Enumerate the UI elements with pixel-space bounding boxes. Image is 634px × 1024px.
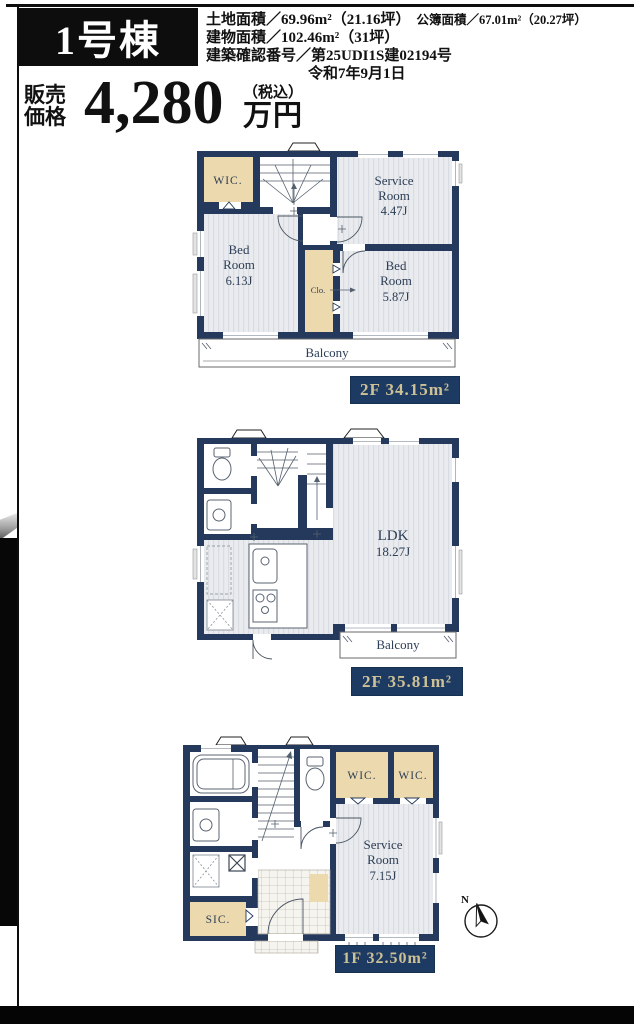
top-frame-rule — [6, 4, 634, 7]
confirmation-number: 建築確認番号／第25UDI1S建02194号 — [206, 47, 626, 65]
service-room-line2: Room — [367, 852, 399, 867]
shoe-cabinet — [310, 874, 328, 902]
stair-opening — [326, 508, 333, 528]
floor-label-upper: 2F 34.15m² — [350, 376, 460, 404]
toilet-icon — [306, 757, 324, 790]
price-label: 販売 価格 — [24, 84, 76, 128]
floorplan-middle: Balcony LDK 18.27J — [193, 428, 465, 668]
bathtub-icon — [193, 755, 249, 793]
balcony: Balcony — [199, 339, 455, 367]
roof-vent-mark — [344, 429, 384, 438]
floor-label-middle: 2F 35.81m² — [351, 667, 463, 696]
washbasin-icon — [207, 500, 231, 530]
price-unit-block: （税込） 万円 — [243, 86, 303, 131]
door-gap-service — [330, 217, 337, 241]
floorplan-lower: N WIC. WIC. Service Room 7.15J SIC. — [173, 733, 503, 978]
registered-area: 公簿面積／67.01m²（20.27坪） — [417, 13, 587, 27]
wic1-label: WIC. — [347, 770, 376, 782]
bedroom1-area: 6.13J — [226, 274, 253, 288]
door-wic — [219, 202, 241, 209]
bedroom1-line2: Room — [223, 257, 255, 272]
building-title: 1号棟 — [55, 8, 161, 66]
roof-vent-mark — [288, 143, 320, 151]
balcony-label: Balcony — [305, 345, 349, 360]
door-sic — [246, 908, 258, 926]
price-amount: 4,280 — [84, 72, 224, 134]
service-room-area: 4.47J — [381, 204, 408, 218]
hallway — [303, 214, 330, 245]
service-room-line1: Service — [375, 173, 414, 188]
ldk-area: 18.27J — [376, 544, 410, 559]
service-room-line1: Service — [364, 837, 403, 852]
compass-n-label: N — [461, 894, 469, 906]
door-gap-washroom — [251, 504, 257, 524]
hallway — [258, 827, 330, 870]
bottom-black-bar — [0, 1006, 634, 1024]
door-gap-balcony-left — [253, 634, 271, 640]
door-gap-toilet — [301, 821, 323, 827]
roof-vent-mark — [232, 430, 266, 438]
kitchen-island — [249, 544, 307, 628]
staircase-area — [257, 444, 326, 528]
entrance-porch — [255, 941, 318, 953]
flyer-page: 1号棟 土地面積／69.96m²（21.16坪）公簿面積／67.01m²（20.… — [0, 0, 634, 1024]
kitchen-sink-icon — [253, 549, 277, 583]
bedroom1-line1: Bed — [229, 242, 250, 257]
roof-vent-mark — [216, 737, 246, 745]
toilet-icon — [213, 448, 231, 480]
door-gap-bedroom2 — [343, 244, 365, 251]
building-title-box: 1号棟 — [18, 8, 198, 66]
door-gap-utility — [252, 858, 258, 878]
price-label-bottom: 価格 — [24, 106, 76, 128]
door-gap-toilet — [251, 456, 257, 476]
panel-x-icon — [229, 855, 245, 871]
service-room-area: 7.15J — [370, 869, 397, 883]
sic-label: SIC. — [206, 914, 231, 926]
tax-note: （税込） — [243, 86, 303, 101]
storage-x-box — [207, 600, 233, 630]
detail-line-areas: 土地面積／69.96m²（21.16坪）公簿面積／67.01m²（20.27坪） — [206, 11, 626, 29]
wic-label: WIC. — [213, 175, 242, 187]
floor-label-lower: 1F 32.50m² — [335, 945, 435, 973]
confirmation-date: 令和7年9月1日 — [308, 65, 626, 83]
roof-vent-mark — [286, 737, 313, 745]
washbasin-icon — [193, 809, 219, 841]
floorplan-upper: Balcony WIC. Service Room 4.47J Bed Room… — [193, 141, 465, 375]
door-gap-bath — [252, 763, 258, 787]
property-details: 土地面積／69.96m²（21.16坪）公簿面積／67.01m²（20.27坪）… — [206, 11, 626, 83]
bedroom2-line2: Room — [380, 273, 412, 288]
closet-label: Clo. — [311, 285, 325, 295]
bedroom2-area: 5.87J — [383, 290, 410, 304]
door-swing-exterior — [253, 640, 272, 659]
ldk-label: LDK — [378, 528, 409, 544]
price-label-top: 販売 — [24, 84, 76, 106]
service-room-line2: Room — [378, 188, 410, 203]
building-area: 建物面積／102.46m²（31坪） — [206, 29, 626, 47]
door-gap-washroom — [252, 818, 258, 840]
page-curl-shadow — [0, 513, 17, 540]
land-area: 土地面積／69.96m²（21.16坪） — [206, 12, 411, 28]
bedroom2-line1: Bed — [386, 258, 407, 273]
balcony: Balcony — [340, 632, 456, 658]
north-compass: N — [461, 894, 497, 937]
left-frame-rule — [17, 4, 19, 1006]
wic2-label: WIC. — [398, 770, 427, 782]
left-scan-shadow — [0, 538, 17, 926]
door-gap-bedroom1 — [273, 207, 297, 214]
balcony-label: Balcony — [376, 637, 420, 652]
washer-space-icon — [193, 855, 219, 887]
price-unit: 万円 — [243, 102, 303, 131]
